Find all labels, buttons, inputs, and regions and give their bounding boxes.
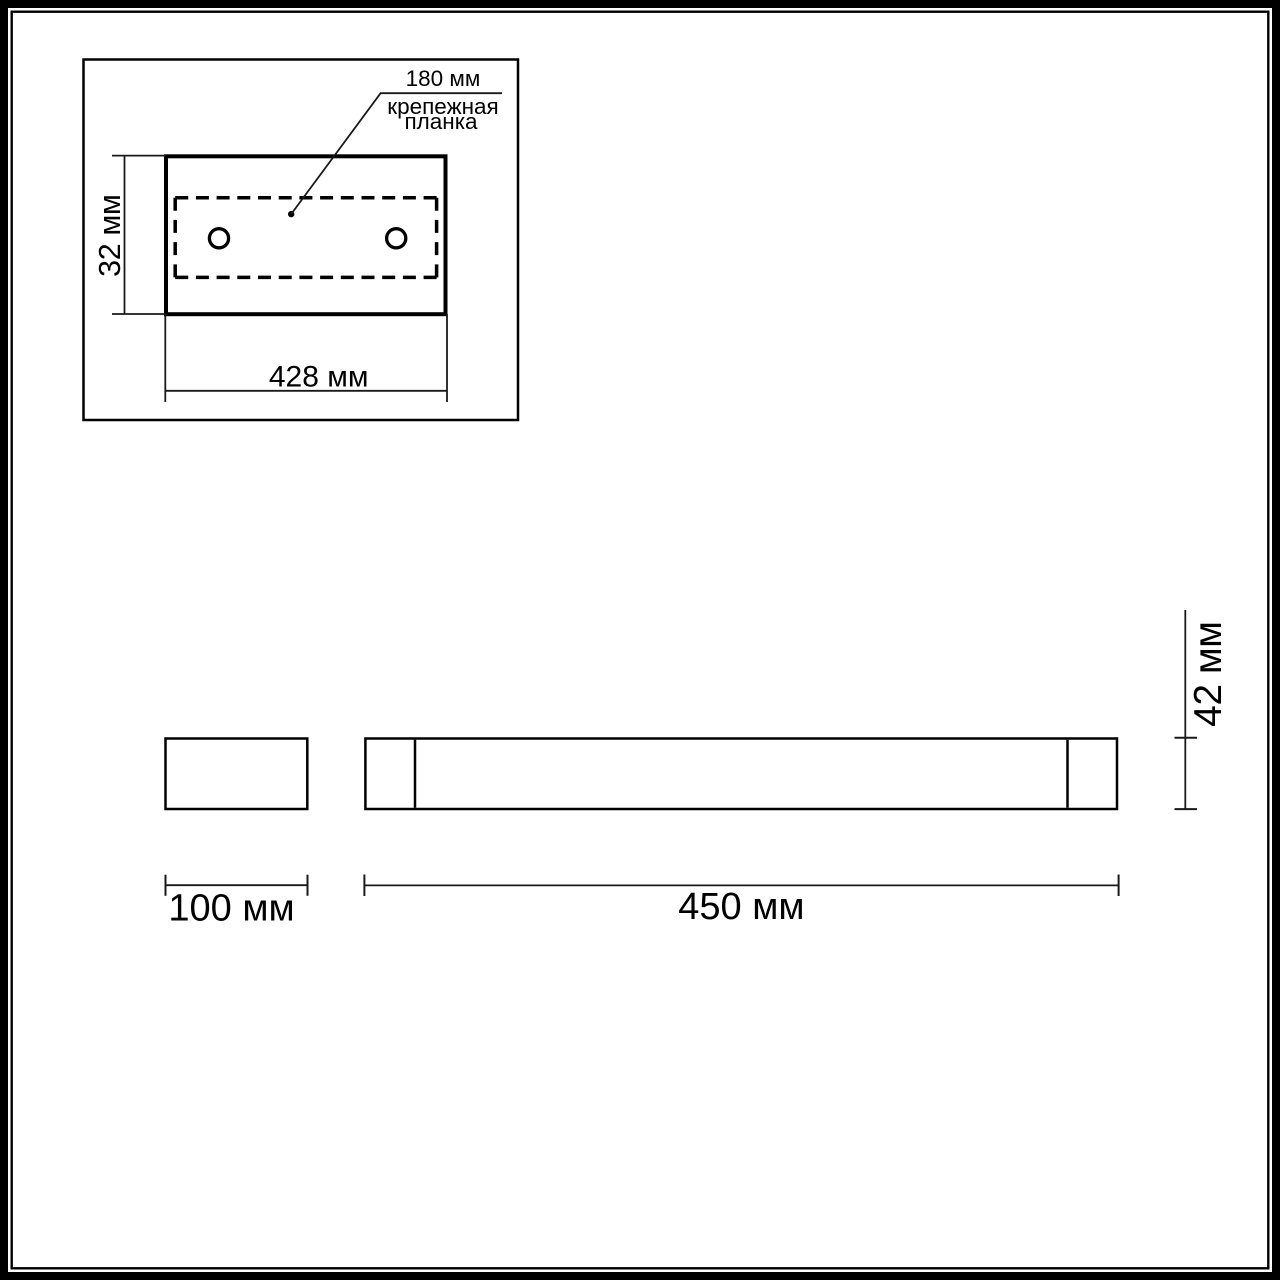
svg-text:32 мм: 32 мм <box>93 195 127 277</box>
svg-text:планка: планка <box>404 109 478 134</box>
svg-text:100 мм: 100 мм <box>168 887 294 929</box>
svg-text:450 мм: 450 мм <box>678 886 804 928</box>
svg-text:180 мм: 180 мм <box>406 66 481 91</box>
svg-text:42 мм: 42 мм <box>1187 622 1230 727</box>
svg-text:428 мм: 428 мм <box>269 361 369 394</box>
